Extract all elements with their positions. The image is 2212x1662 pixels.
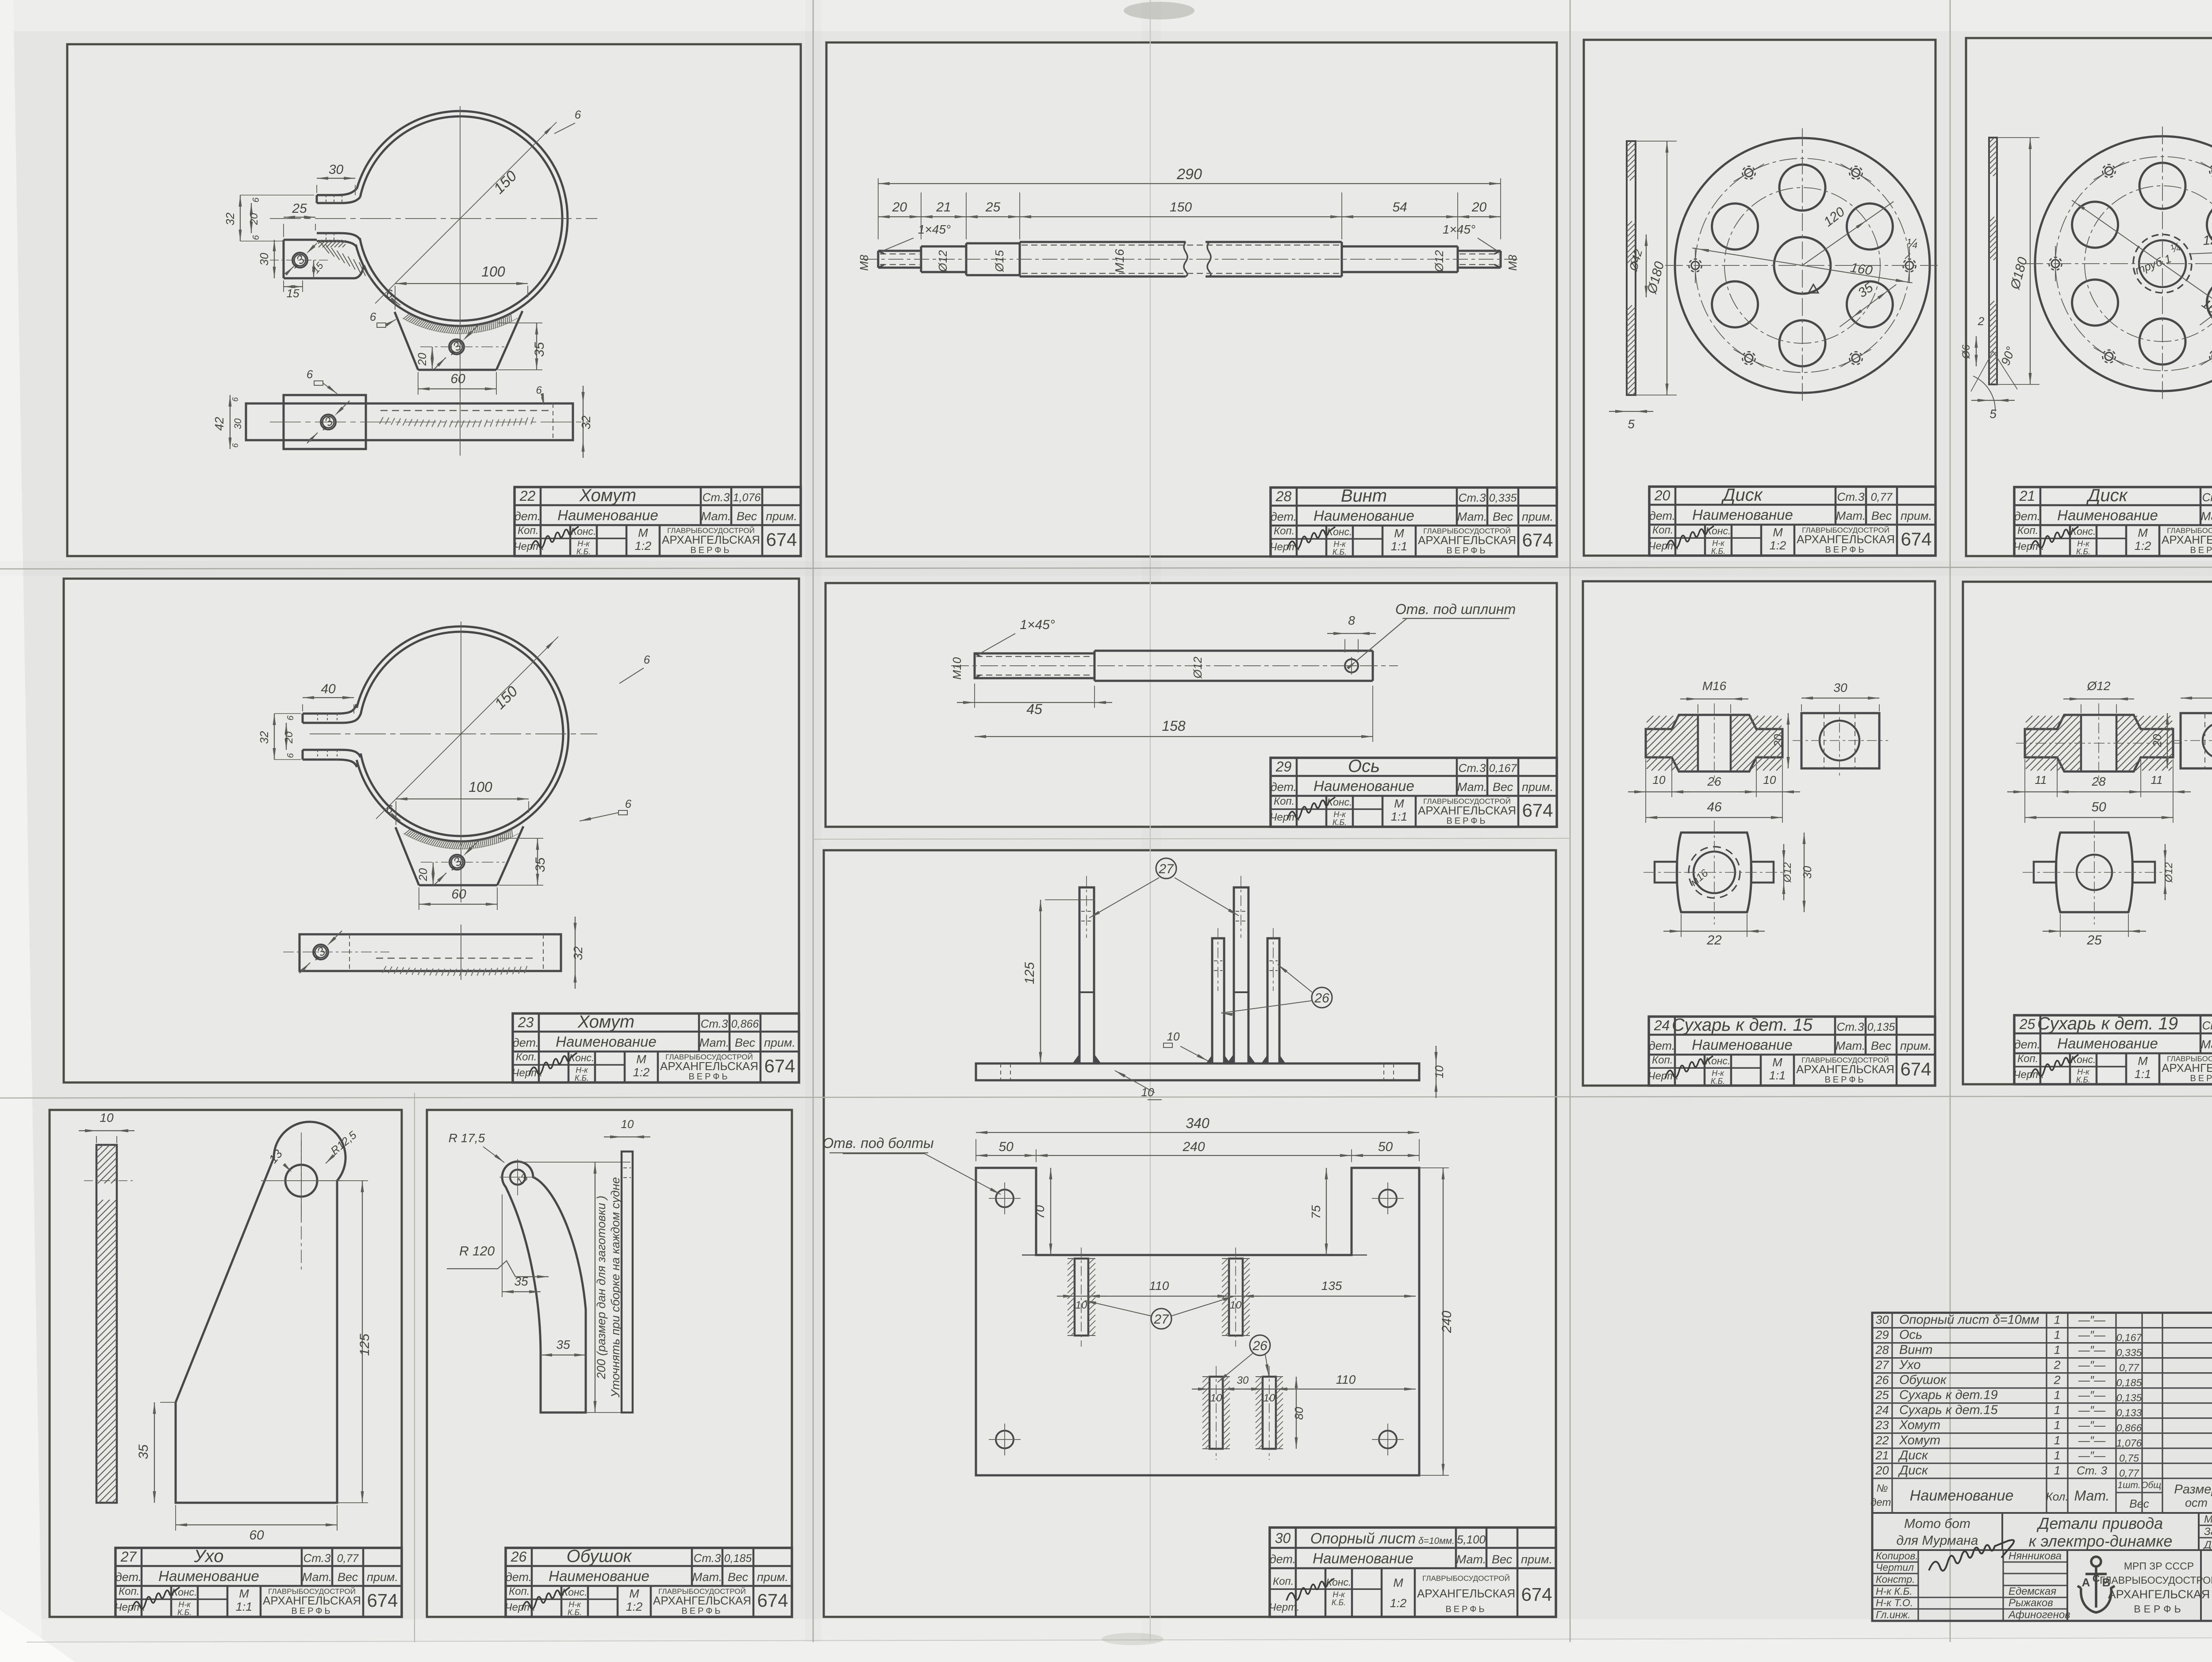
svg-text:Конс.: Конс.: [1326, 1576, 1352, 1588]
svg-text:Ст.3: Ст.3: [1837, 1020, 1864, 1033]
svg-text:20: 20: [416, 868, 430, 881]
svg-text:25: 25: [1875, 1389, 1889, 1402]
svg-text:60: 60: [451, 887, 466, 902]
svg-text:110: 110: [1149, 1279, 1169, 1293]
svg-text:1:1: 1:1: [236, 1600, 253, 1613]
svg-text:21: 21: [936, 200, 951, 215]
svg-text:М – 1:1 и 1:2: М – 1:1 и 1:2: [2204, 1513, 2212, 1525]
svg-text:Ст.3: Ст.3: [1459, 491, 1486, 504]
svg-text:Мат.: Мат.: [1457, 780, 1487, 794]
svg-text:Коп.: Коп.: [119, 1585, 139, 1597]
svg-text:20: 20: [415, 353, 429, 366]
svg-text:Н-к: Н-к: [577, 539, 590, 548]
svg-text:35: 35: [533, 857, 548, 872]
svg-text:АРХАНГЕЛЬСКАЯ: АРХАНГЕЛЬСКАЯ: [2162, 533, 2212, 546]
svg-text:25: 25: [2086, 933, 2102, 948]
svg-text:1шт.: 1шт.: [2117, 1480, 2140, 1490]
svg-text:Ухо: Ухо: [1899, 1358, 1921, 1372]
svg-text:Рыжаков: Рыжаков: [2008, 1597, 2053, 1609]
svg-text:2: 2: [2053, 1374, 2060, 1387]
svg-text:Н-к: Н-к: [178, 1600, 191, 1609]
svg-text:дет.: дет.: [1271, 510, 1297, 523]
svg-text:674: 674: [766, 529, 797, 550]
svg-text:290: 290: [1176, 166, 1202, 183]
svg-text:Конс.: Конс.: [2071, 1054, 2096, 1065]
svg-text:0,335: 0,335: [2116, 1347, 2142, 1359]
svg-text:80: 80: [1292, 1407, 1306, 1420]
svg-text:прим.: прим.: [1900, 1039, 1932, 1052]
svg-text:прим.: прим.: [766, 510, 797, 523]
svg-text:АРХАНГЕЛЬСКАЯ: АРХАНГЕЛЬСКАЯ: [2162, 1061, 2212, 1075]
svg-text:0,75: 0,75: [2119, 1452, 2139, 1464]
svg-text:35: 35: [136, 1444, 151, 1459]
svg-text:М: М: [638, 526, 648, 540]
svg-text:Гл.инж.: Гл.инж.: [1876, 1609, 1911, 1620]
svg-text:А: А: [2082, 1576, 2090, 1589]
svg-text:R 120: R 120: [459, 1244, 495, 1259]
svg-text:Мат.: Мат.: [1457, 510, 1487, 523]
svg-text:дет.: дет.: [1649, 509, 1675, 522]
svg-text:30: 30: [232, 418, 243, 429]
svg-text:20: 20: [1771, 734, 1785, 747]
svg-text:1:2: 1:2: [633, 1066, 650, 1079]
svg-text:М: М: [2138, 526, 2148, 540]
svg-text:¼: ¼: [1906, 236, 1917, 251]
svg-text:Конс.: Конс.: [2071, 526, 2096, 537]
svg-text:26: 26: [1707, 775, 1721, 788]
svg-text:0,133: 0,133: [2116, 1407, 2142, 1419]
svg-text:Н-к: Н-к: [1333, 540, 1346, 549]
svg-text:110: 110: [1336, 1373, 1356, 1386]
svg-text:30: 30: [1833, 681, 1847, 695]
svg-text:70: 70: [1033, 1205, 1047, 1219]
svg-text:Обушок: Обушок: [566, 1547, 632, 1566]
svg-text:Н-к: Н-к: [1333, 1590, 1345, 1599]
svg-text:Мото бот: Мото бот: [1904, 1516, 1970, 1531]
svg-text:Мат.: Мат.: [1836, 509, 1866, 522]
svg-text:Ухо: Ухо: [194, 1547, 224, 1566]
svg-text:10: 10: [1141, 1086, 1154, 1099]
svg-text:Конс.: Конс.: [571, 526, 596, 537]
svg-text:674: 674: [1900, 1059, 1931, 1079]
svg-text:Обушок: Обушок: [1899, 1373, 1947, 1387]
svg-text:М: М: [2138, 1055, 2148, 1068]
svg-text:2: 2: [2053, 1359, 2060, 1372]
svg-text:Н-к: Н-к: [2077, 539, 2090, 548]
svg-text:0,167: 0,167: [2116, 1332, 2143, 1343]
svg-text:ГЛАВРЫБОСУДОСТРОЙ: ГЛАВРЫБОСУДОСТРОЙ: [1422, 1574, 1510, 1583]
svg-text:прим.: прим.: [757, 1570, 788, 1584]
svg-text:Наименование: Наименование: [2057, 1035, 2158, 1052]
svg-text:Ст.3: Ст.3: [694, 1551, 721, 1565]
svg-text:дет.: дет.: [1870, 1497, 1894, 1508]
svg-text:Н-к К.Б.: Н-к К.Б.: [1876, 1585, 1912, 1597]
svg-text:Ось: Ось: [1899, 1328, 1922, 1342]
svg-text:К.Б.: К.Б.: [568, 1608, 582, 1617]
svg-text:К.Б.: К.Б.: [1332, 1598, 1346, 1607]
svg-text:Наименование: Наименование: [1313, 778, 1414, 794]
svg-text:10: 10: [1167, 1030, 1180, 1043]
svg-text:Диск: Диск: [2086, 486, 2128, 505]
svg-text:Диск: Диск: [1898, 1463, 1928, 1478]
svg-text:27: 27: [1158, 862, 1174, 876]
svg-text:100: 100: [469, 779, 492, 795]
svg-text:дет.: дет.: [513, 1036, 539, 1049]
svg-text:340: 340: [1186, 1115, 1210, 1131]
svg-text:1: 1: [2054, 1464, 2060, 1477]
svg-text:32: 32: [579, 415, 593, 430]
svg-text:Винт: Винт: [1341, 486, 1387, 506]
svg-text:ост: ост: [2185, 1496, 2208, 1509]
svg-text:дет.: дет.: [1649, 1039, 1675, 1052]
svg-text:ВЕРФЬ: ВЕРФЬ: [2134, 1603, 2184, 1615]
svg-text:1:1: 1:1: [1769, 1069, 1786, 1082]
svg-text:6: 6: [644, 653, 650, 666]
svg-text:Сухарь к дет. 15: Сухарь к дет. 15: [1672, 1015, 1813, 1035]
svg-text:Ø12: Ø12: [2087, 679, 2111, 693]
svg-text:Вес: Вес: [1493, 780, 1513, 794]
svg-text:50: 50: [2091, 800, 2106, 814]
svg-text:Конс.: Конс.: [562, 1586, 588, 1598]
svg-text:0,77: 0,77: [337, 1552, 359, 1565]
svg-text:45: 45: [1026, 701, 1042, 717]
svg-text:10: 10: [1230, 1299, 1242, 1311]
svg-text:№: №: [1877, 1482, 1888, 1494]
svg-text:дет.: дет.: [1270, 1553, 1296, 1566]
svg-text:60: 60: [450, 372, 465, 386]
svg-text:Вес: Вес: [1871, 509, 1892, 522]
svg-text:Вес: Вес: [1492, 1553, 1513, 1566]
svg-text:15: 15: [287, 287, 300, 300]
svg-text:АРХАНГЕЛЬСКАЯ: АРХАНГЕЛЬСКАЯ: [662, 533, 760, 546]
svg-text:11: 11: [2151, 773, 2163, 787]
svg-text:30: 30: [329, 162, 344, 177]
svg-text:Н-к: Н-к: [568, 1600, 581, 1609]
svg-text:Коп.: Коп.: [1273, 1575, 1294, 1587]
svg-text:158: 158: [1162, 718, 1186, 734]
svg-text:ВЕРФЬ: ВЕРФЬ: [291, 1606, 332, 1616]
svg-text:32: 32: [257, 731, 271, 744]
svg-text:для Мурмана: для Мурмана: [1897, 1533, 1978, 1548]
svg-text:30: 30: [1237, 1374, 1249, 1386]
svg-text:Хомут: Хомут: [1899, 1418, 1940, 1432]
svg-text:дет.: дет.: [2014, 510, 2040, 523]
svg-text:Уточнять при сборке на каждом: Уточнять при сборке на каждом судне: [609, 1177, 622, 1398]
svg-text:6: 6: [370, 310, 376, 323]
svg-text:Н-к: Н-к: [1712, 539, 1725, 548]
svg-text:1: 1: [2054, 1343, 2060, 1357]
svg-text:Мат.: Мат.: [2201, 1038, 2212, 1051]
svg-text:6: 6: [286, 753, 296, 758]
svg-text:Мат.: Мат.: [302, 1570, 332, 1584]
svg-text:Наименование: Наименование: [1313, 507, 1414, 524]
svg-text:10: 10: [621, 1117, 634, 1131]
svg-text:К.Б.: К.Б.: [2076, 547, 2090, 556]
svg-text:54: 54: [1392, 200, 1407, 215]
svg-text:Ø12: Ø12: [2163, 862, 2175, 883]
svg-text:Мат.: Мат.: [2201, 510, 2212, 523]
svg-text:5: 5: [1628, 417, 1635, 431]
svg-text:К.Б.: К.Б.: [177, 1608, 192, 1617]
svg-text:Коп.: Коп.: [518, 525, 538, 537]
svg-text:Вес: Вес: [735, 1036, 756, 1049]
svg-text:М: М: [1394, 797, 1404, 810]
svg-text:0,135: 0,135: [2116, 1392, 2142, 1404]
svg-text:Констр.: Констр.: [1876, 1574, 1915, 1585]
svg-text:125: 125: [1022, 962, 1037, 984]
svg-text:Вес: Вес: [1493, 510, 1513, 523]
svg-text:Наименование: Наименование: [549, 1568, 649, 1584]
svg-text:дет.: дет.: [515, 510, 541, 523]
svg-text:674: 674: [1522, 800, 1553, 821]
svg-text:35: 35: [514, 1274, 528, 1288]
svg-text:М: М: [1393, 1576, 1403, 1589]
svg-text:30: 30: [257, 253, 271, 265]
svg-text:674: 674: [367, 1590, 398, 1611]
svg-text:10: 10: [1763, 773, 1776, 787]
svg-text:ВЕРФЬ: ВЕРФЬ: [1445, 1604, 1486, 1614]
svg-text:200 (размер дан для заготовки: 200 (размер дан для заготовки ): [595, 1196, 608, 1380]
svg-text:1: 1: [2054, 1313, 2060, 1327]
svg-text:1: 1: [2054, 1449, 2060, 1462]
svg-text:дет.: дет.: [506, 1570, 532, 1584]
svg-text:Коп.: Коп.: [516, 1051, 537, 1063]
svg-text:М10: М10: [950, 657, 964, 679]
svg-text:ВЕРФЬ: ВЕРФЬ: [681, 1606, 722, 1616]
svg-text:10: 10: [1653, 773, 1666, 787]
svg-text:АРХАНГЕЛЬСКАЯ: АРХАНГЕЛЬСКАЯ: [1417, 1587, 1515, 1600]
svg-text:АРХАНГЕЛЬСКАЯ: АРХАНГЕЛЬСКАЯ: [660, 1059, 758, 1073]
svg-text:М16: М16: [1702, 679, 1727, 693]
svg-text:30: 30: [1275, 1530, 1291, 1546]
svg-text:30: 30: [1875, 1313, 1889, 1327]
svg-text:Ø6: Ø6: [1960, 344, 1972, 359]
svg-text:К.Б.: К.Б.: [575, 1074, 589, 1082]
svg-text:22: 22: [1875, 1434, 1889, 1447]
svg-text:Н-к Т.О.: Н-к Т.О.: [1876, 1597, 1913, 1608]
svg-text:28: 28: [1275, 488, 1292, 504]
svg-text:Вес: Вес: [737, 510, 757, 523]
svg-text:1,076: 1,076: [733, 491, 761, 504]
svg-text:М8: М8: [1506, 254, 1519, 271]
svg-text:М: М: [636, 1053, 646, 1066]
svg-text:35: 35: [532, 342, 547, 357]
svg-text:ВЕРФЬ: ВЕРФЬ: [1824, 1075, 1866, 1085]
svg-text:1:1: 1:1: [1391, 540, 1408, 553]
svg-text:1:2: 1:2: [635, 539, 652, 553]
svg-text:0,77: 0,77: [2119, 1467, 2139, 1479]
svg-text:Конс.: Конс.: [1327, 796, 1352, 808]
svg-text:50: 50: [998, 1140, 1014, 1154]
svg-text:50: 50: [1378, 1140, 1393, 1154]
svg-text:Вес: Вес: [338, 1570, 358, 1584]
svg-text:Мат.: Мат.: [692, 1570, 722, 1584]
svg-text:—″—: —″—: [2078, 1343, 2106, 1357]
svg-text:6: 6: [575, 108, 581, 121]
svg-text:0,77: 0,77: [2119, 1362, 2139, 1374]
svg-text:Отв. под шплинт: Отв. под шплинт: [1395, 601, 1516, 617]
svg-text:674: 674: [1521, 1584, 1552, 1605]
svg-text:Хомут: Хомут: [579, 486, 636, 505]
svg-text:—″—: —″—: [2078, 1389, 2106, 1402]
svg-text:Мат.: Мат.: [1836, 1039, 1866, 1052]
svg-text:Копиров.: Копиров.: [1876, 1550, 1918, 1562]
svg-text:Хомут: Хомут: [1899, 1433, 1940, 1447]
svg-text:1:1: 1:1: [1391, 810, 1408, 823]
svg-text:К.Б.: К.Б.: [1333, 818, 1347, 827]
svg-text:6: 6: [231, 443, 240, 448]
svg-text:23: 23: [1875, 1419, 1889, 1432]
svg-text:1:1: 1:1: [2135, 1067, 2151, 1081]
svg-text:Ø12: Ø12: [1191, 656, 1204, 679]
svg-text:ВЕРФЬ: ВЕРФЬ: [688, 1072, 730, 1082]
svg-text:Диск: Диск: [1721, 485, 1763, 505]
svg-text:6: 6: [307, 368, 313, 381]
svg-text:24: 24: [1875, 1404, 1889, 1417]
svg-text:АРХАНГЕЛЬСКАЯ: АРХАНГЕЛЬСКАЯ: [1796, 1063, 1894, 1076]
svg-text:674: 674: [757, 1590, 788, 1611]
svg-text:—″—: —″—: [2078, 1313, 2106, 1327]
svg-text:прим.: прим.: [1901, 509, 1932, 522]
svg-text:Ø15: Ø15: [993, 250, 1006, 273]
svg-text:20: 20: [892, 200, 907, 215]
svg-text:прим.: прим.: [1521, 1553, 1552, 1566]
svg-text:ГЛАВРЫБОСУДОСТРОЙ: ГЛАВРЫБОСУДОСТРОЙ: [2100, 1574, 2212, 1586]
svg-text:ВЕРФЬ: ВЕРФЬ: [1446, 546, 1487, 556]
svg-text:АРХАНГЕЛЬСКАЯ: АРХАНГЕЛЬСКАЯ: [1797, 533, 1895, 546]
svg-text:К.Б.: К.Б.: [576, 547, 591, 556]
svg-text:26: 26: [1875, 1374, 1889, 1387]
svg-text:М: М: [239, 1587, 249, 1601]
svg-text:дет.: дет.: [2014, 1038, 2040, 1051]
svg-text:Конс.: Конс.: [1705, 1055, 1731, 1067]
svg-text:прим.: прим.: [1522, 510, 1553, 523]
svg-text:Отв. под болты: Отв. под болты: [822, 1135, 933, 1151]
svg-text:Мат.: Мат.: [699, 1036, 730, 1049]
svg-text:М: М: [1394, 527, 1404, 540]
svg-text:С: С: [2093, 1573, 2100, 1584]
svg-text:Конс.: Конс.: [172, 1586, 197, 1598]
svg-text:Чертил: Чертил: [1876, 1562, 1914, 1573]
svg-text:10: 10: [1263, 1392, 1275, 1404]
svg-text:Кол.: Кол.: [2046, 1490, 2068, 1503]
svg-text:Коп.: Коп.: [1274, 525, 1294, 537]
svg-text:—″—: —″—: [2078, 1374, 2106, 1387]
svg-text:23: 23: [518, 1014, 534, 1030]
svg-text:АРХАНГЕЛЬСКАЯ: АРХАНГЕЛЬСКАЯ: [1418, 804, 1516, 817]
svg-text:32: 32: [223, 212, 237, 225]
svg-text:75: 75: [1309, 1205, 1323, 1219]
svg-text:Конс.: Конс.: [1706, 525, 1731, 537]
svg-text:1: 1: [2054, 1389, 2060, 1402]
svg-text:Винт: Винт: [1899, 1343, 1933, 1357]
svg-text:—″—: —″—: [2078, 1404, 2106, 1417]
svg-text:Коп.: Коп.: [1652, 524, 1673, 536]
svg-text:Ст. 3: Ст. 3: [2077, 1464, 2108, 1477]
svg-text:М: М: [1772, 1056, 1782, 1069]
svg-text:26: 26: [511, 1549, 527, 1565]
svg-text:Ст.3: Ст.3: [303, 1551, 331, 1565]
svg-text:Ст.3: Ст.3: [1459, 761, 1486, 775]
svg-text:Опорный лист: Опорный лист: [1310, 1530, 1416, 1547]
svg-text:Хомут: Хомут: [577, 1012, 634, 1032]
svg-text:дет.: дет.: [1271, 780, 1297, 794]
svg-text:Ø12: Ø12: [1432, 250, 1446, 273]
svg-text:дет.: дет.: [115, 1570, 142, 1584]
svg-text:Н-к: Н-к: [1333, 810, 1346, 819]
svg-text:10: 10: [1210, 1392, 1222, 1404]
svg-text:28: 28: [2091, 775, 2106, 788]
svg-text:120: 120: [2202, 232, 2212, 248]
svg-text:М: М: [629, 1587, 639, 1601]
svg-text:100: 100: [481, 264, 505, 280]
svg-text:35: 35: [556, 1338, 570, 1351]
svg-text:150: 150: [1170, 200, 1192, 215]
svg-text:0,77: 0,77: [1871, 491, 1893, 503]
svg-text:Едемская: Едемская: [2008, 1585, 2056, 1597]
svg-text:Коп.: Коп.: [509, 1585, 530, 1597]
svg-text:240: 240: [1440, 1311, 1454, 1333]
svg-text:δ=10мм.: δ=10мм.: [1418, 1536, 1455, 1546]
svg-text:Наименование: Наименование: [1692, 507, 1793, 523]
svg-text:Мат.: Мат.: [701, 510, 731, 523]
svg-text:1:2: 1:2: [626, 1600, 643, 1613]
svg-text:0,866: 0,866: [731, 1018, 759, 1030]
svg-text:к электро-динамке: к электро-динамке: [2029, 1532, 2173, 1550]
svg-text:11: 11: [2035, 773, 2047, 787]
svg-text:25: 25: [2019, 1016, 2035, 1032]
svg-text:0,866: 0,866: [2116, 1422, 2142, 1434]
svg-text:Коп.: Коп.: [2017, 1053, 2038, 1065]
svg-text:Коп.: Коп.: [2017, 525, 2038, 537]
svg-text:28: 28: [1875, 1343, 1889, 1357]
svg-text:Детали привода: Детали привода: [2036, 1514, 2163, 1532]
svg-text:674: 674: [1901, 529, 1932, 549]
svg-text:прим.: прим.: [764, 1036, 795, 1049]
svg-text:Сухарь к дет.15: Сухарь к дет.15: [1899, 1403, 1998, 1417]
svg-text:26: 26: [1314, 991, 1329, 1006]
svg-text:0,185: 0,185: [2116, 1377, 2142, 1389]
svg-text:Наименование: Наименование: [1910, 1487, 2014, 1504]
svg-text:—″—: —″—: [2078, 1328, 2106, 1342]
svg-text:30: 30: [1801, 866, 1814, 879]
svg-text:Н-к: Н-к: [2077, 1067, 2090, 1076]
svg-text:0,335: 0,335: [1489, 492, 1517, 504]
svg-text:Наименование: Наименование: [557, 507, 658, 523]
svg-text:6: 6: [625, 797, 632, 810]
svg-text:Черт.: Черт.: [1269, 1601, 1299, 1613]
svg-text:46: 46: [1707, 800, 1722, 814]
svg-text:прим.: прим.: [367, 1570, 398, 1584]
svg-text:АРХАНГЕЛЬСКАЯ: АРХАНГЕЛЬСКАЯ: [263, 1594, 361, 1607]
svg-text:К.Б.: К.Б.: [1711, 547, 1725, 556]
svg-text:Заказ:: Заказ:: [2204, 1526, 2212, 1538]
svg-text:К.Б.: К.Б.: [1711, 1077, 1725, 1086]
svg-text:1: 1: [2054, 1328, 2060, 1342]
svg-text:Ст.3: Ст.3: [2202, 491, 2212, 504]
svg-text:АРХАНГЕЛЬСКАЯ: АРХАНГЕЛЬСКАЯ: [1418, 534, 1516, 547]
svg-text:1: 1: [2054, 1434, 2060, 1447]
svg-text:674: 674: [764, 1056, 795, 1076]
svg-text:20: 20: [283, 731, 295, 744]
svg-text:0,167: 0,167: [1489, 762, 1517, 775]
svg-text:Опорный лист δ=10мм: Опорный лист δ=10мм: [1899, 1313, 2039, 1327]
svg-text:1,076: 1,076: [2116, 1437, 2142, 1449]
svg-text:20: 20: [248, 213, 260, 225]
svg-text:Вес: Вес: [728, 1570, 749, 1584]
svg-text:27: 27: [1153, 1312, 1169, 1327]
svg-text:ВЕРФЬ: ВЕРФЬ: [2190, 1074, 2212, 1083]
